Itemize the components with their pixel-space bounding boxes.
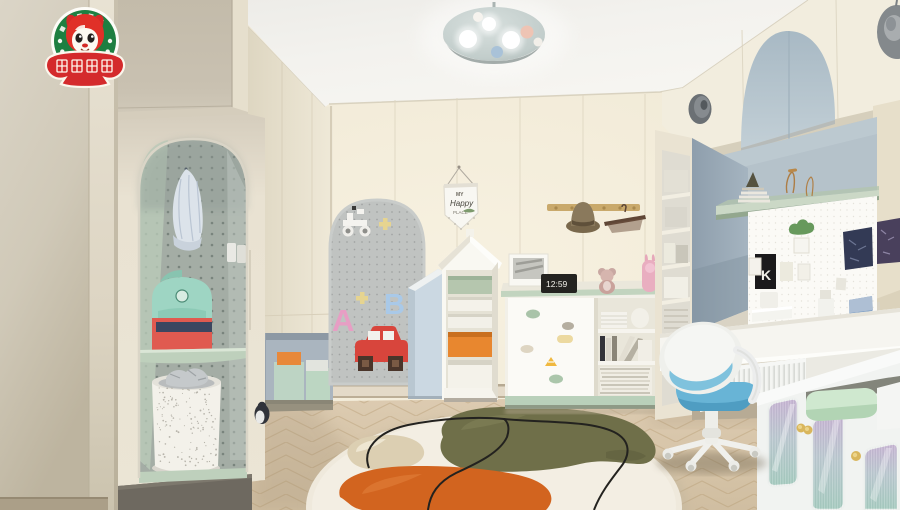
svg-text:A: A: [332, 303, 354, 338]
svg-text:MY: MY: [456, 192, 464, 198]
svg-text:B: B: [384, 289, 405, 321]
svg-text:12:59: 12:59: [546, 279, 568, 289]
svg-text:K: K: [761, 267, 771, 283]
svg-text:Happy: Happy: [450, 199, 474, 208]
